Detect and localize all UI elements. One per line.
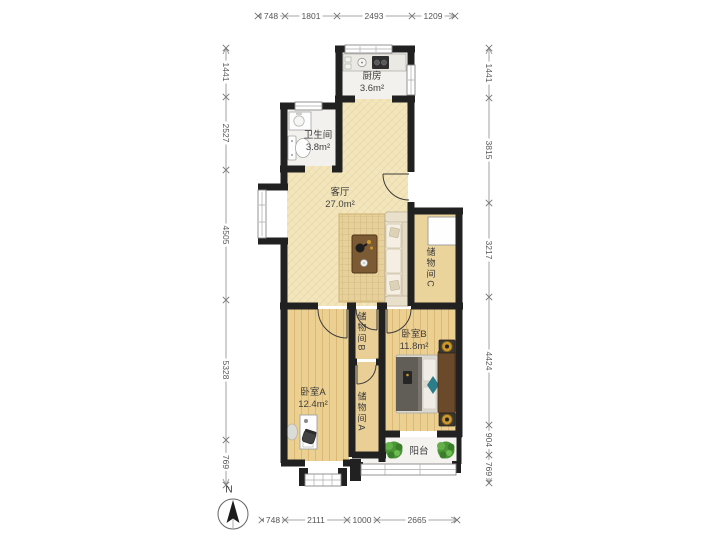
kitchen-window: [345, 45, 392, 53]
storage-b-floor: [355, 309, 379, 359]
bedroom-a-bay-window: [305, 474, 341, 486]
bed-icon: [396, 351, 455, 413]
sofa-icon: [385, 212, 411, 306]
compass-north-label: N: [225, 485, 232, 496]
storage-a-floor: [355, 362, 379, 452]
dim-line-bottom: [259, 517, 460, 523]
floor-plan: 厨房 3.6m² 卫生间 3.8m² 客厅 27.0m² 储物间C 储物间B 储…: [0, 0, 720, 540]
dim-line-left: [223, 45, 229, 488]
kitchen-side-window: [407, 65, 415, 95]
compass-icon: [218, 499, 248, 529]
bathroom-window: [295, 102, 322, 110]
lounge-chair-icon: [287, 424, 298, 440]
kitchen-counter-icon: [343, 54, 406, 71]
dim-line-right: [486, 45, 492, 486]
living-bay-window: [258, 190, 266, 238]
bathroom-sink-icon: [289, 112, 311, 130]
nightstand-icon: [439, 340, 455, 353]
dim-line-top: [255, 13, 458, 19]
nightstand-icon: [439, 413, 455, 426]
bedroom-a-floor: [287, 309, 349, 461]
headboard: [438, 351, 455, 413]
stove-icon: [372, 56, 389, 69]
balcony-window: [361, 464, 456, 475]
cabinet-icon: [428, 217, 456, 245]
coffee-table-icon: [352, 235, 377, 273]
floor-plan-graphic: [0, 0, 720, 540]
toilet-icon: [288, 136, 311, 160]
